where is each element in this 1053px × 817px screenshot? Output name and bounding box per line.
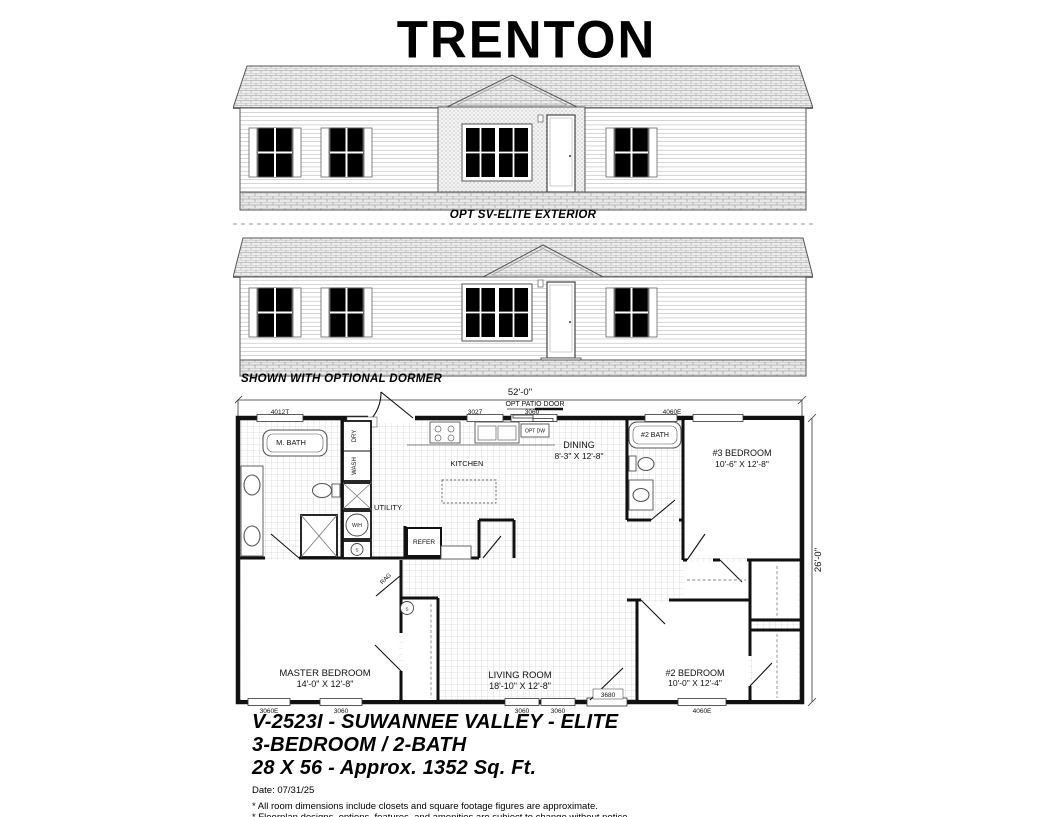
window	[606, 288, 657, 337]
footnote-1: * All room dimensions include closets an…	[252, 801, 812, 812]
room-size-dining: 8'-3" X 12'-8"	[555, 451, 604, 461]
window	[321, 288, 372, 337]
elevation-front-elite	[233, 58, 813, 228]
beds-baths: 3-BEDROOM / 2-BATH	[252, 734, 812, 757]
room-size-master: 14'-0" X 12'-8"	[297, 679, 354, 689]
model-name: V-2523I - SUWANNEE VALLEY - ELITE	[252, 711, 812, 734]
smoke-detector-label: S	[405, 607, 408, 612]
footnote-2: * Floorplan designs, options, features, …	[252, 812, 812, 817]
window-pair-entry	[462, 124, 532, 181]
dim-overall-width: 52'-0"	[508, 387, 532, 398]
front-door	[541, 115, 581, 201]
window-pair-entry	[462, 284, 532, 341]
room-label-bath2: #2 BATH	[641, 432, 669, 439]
window	[249, 288, 301, 337]
room-size-living: 18'-10" X 12'-8"	[489, 681, 551, 691]
room-label-bed2: #2 BEDROOM	[665, 668, 724, 678]
opt-patio-door-label: OPT PATIO DOOR	[505, 401, 564, 408]
dryer-label: DRY	[352, 430, 358, 443]
opt-dishwasher-label: OPT DW	[525, 429, 545, 435]
window	[321, 128, 372, 177]
room-label-master: MASTER BEDROOM	[279, 668, 370, 679]
room-size-bed3: 10'-6" X 12'-8"	[715, 459, 769, 469]
elevation-front-dormer	[233, 230, 813, 380]
dim-overall-depth: 26'-0"	[813, 548, 824, 572]
brick-skirting	[240, 192, 806, 210]
porch-light	[538, 115, 543, 122]
water-heater-label: W/H	[352, 523, 362, 529]
front-door	[541, 282, 581, 366]
size-line: 28 X 56 - Approx. 1352 Sq. Ft.	[252, 757, 812, 780]
floor-plan: 52'-0" OPT PATIO DOOR 4012T 3027 3060 40…	[235, 384, 835, 718]
smoke-detector-label: S	[355, 548, 358, 553]
room-label-utility: UTILITY	[374, 503, 402, 512]
closet-floor	[752, 632, 798, 700]
room-label-bed3: #3 BEDROOM	[712, 448, 771, 458]
room-size-bed2: 10'-0" X 12'-4"	[668, 678, 722, 688]
footer-block: V-2523I - SUWANNEE VALLEY - ELITE 3-BEDR…	[252, 711, 812, 817]
room-label-mbath: M. BATH	[276, 438, 306, 447]
porch-light	[538, 280, 543, 287]
date-line: Date: 07/31/25	[252, 785, 812, 796]
washer-label: WASH	[352, 457, 358, 475]
closet-floor	[752, 562, 798, 618]
room-label-living: LIVING ROOM	[488, 670, 551, 681]
room-label-kitchen: KITCHEN	[451, 459, 484, 468]
refrigerator-label: REFER	[413, 539, 435, 546]
floorplan-sheet: TRENTON	[0, 0, 1053, 817]
window	[606, 128, 657, 177]
win-label: 3680	[601, 692, 616, 699]
elevation1-caption: OPT SV-ELITE EXTERIOR	[233, 209, 813, 221]
master-closet-floor	[403, 600, 437, 700]
room-label-dining: DINING	[563, 440, 595, 450]
window	[249, 128, 301, 177]
